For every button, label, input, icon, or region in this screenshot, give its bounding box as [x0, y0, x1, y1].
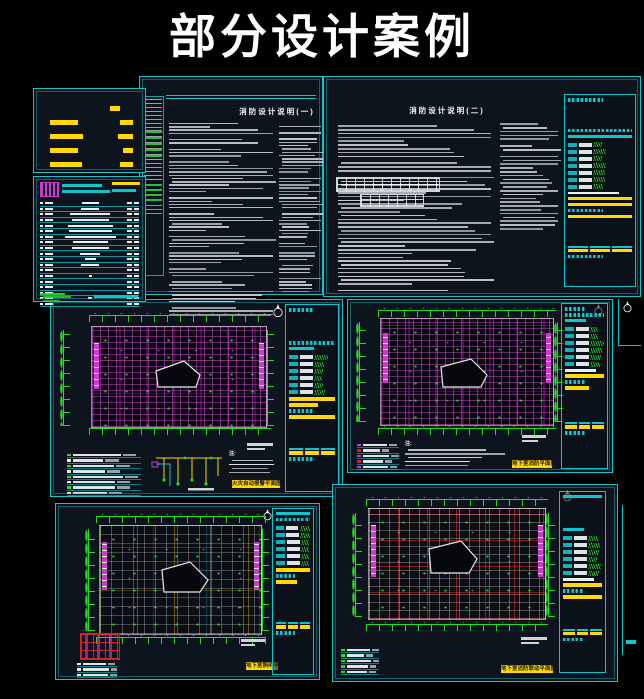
text-line-skeleton — [338, 144, 408, 146]
text-line-skeleton — [338, 290, 448, 292]
text-line-skeleton — [405, 465, 468, 466]
signature-row — [565, 355, 604, 360]
title-block — [559, 491, 606, 673]
signature-table — [568, 140, 632, 189]
signature-row — [565, 341, 604, 346]
partial-sheet-edge — [622, 505, 637, 655]
text-line-skeleton — [282, 233, 308, 234]
text-line-skeleton — [279, 142, 317, 143]
signature-table — [276, 524, 310, 566]
legend-dash-row — [50, 119, 133, 125]
sheet-plan-basement-lighting: 地下室照明平面图 — [55, 503, 320, 680]
axis-ticks-right — [548, 513, 555, 617]
text-line-skeleton — [500, 145, 532, 147]
text-line-skeleton — [279, 288, 312, 289]
date-bar — [276, 568, 310, 572]
project-yellow-bar — [568, 215, 632, 219]
signature-mark — [593, 149, 606, 154]
revision-bars — [521, 635, 547, 644]
legend-note-bar — [123, 454, 136, 456]
titleblock-footer-text — [276, 631, 295, 635]
cell — [45, 219, 53, 221]
field-value-box — [300, 369, 313, 374]
signature-row — [568, 149, 632, 154]
notes-block: 注: — [229, 452, 279, 473]
legend-symbol — [341, 649, 345, 651]
axis-ticks-left — [355, 513, 362, 617]
field-label-box — [568, 157, 577, 161]
legend-note-bar — [366, 654, 373, 656]
cell — [55, 230, 125, 232]
text-line-skeleton — [279, 230, 321, 231]
legend-symbol — [341, 654, 345, 656]
cell — [127, 241, 132, 243]
text-line-skeleton — [279, 281, 306, 282]
cell — [40, 258, 43, 260]
poster-canvas: 部分设计案例 消防设计说明(一) 消防设计说明(二) — [0, 0, 644, 699]
field-label-box — [565, 355, 574, 359]
legend-text-bar — [73, 481, 115, 483]
cell — [40, 275, 43, 277]
legend-text-bar — [363, 449, 380, 451]
cell — [127, 275, 132, 277]
text-line-skeleton — [279, 201, 320, 202]
titleblock-text — [568, 98, 603, 102]
legend-text-bar — [347, 649, 370, 651]
text-line-skeleton — [169, 142, 258, 143]
legend-dash — [50, 162, 82, 167]
cell — [40, 247, 43, 249]
legend-symbol — [67, 481, 71, 483]
text-line-skeleton — [43, 300, 60, 302]
legend-dashes — [50, 97, 133, 175]
legend-dash — [50, 148, 78, 153]
legend-symbol — [67, 459, 71, 461]
text-line-skeleton — [169, 168, 273, 169]
cell — [127, 230, 132, 232]
date-bar — [289, 397, 335, 401]
text-line-skeleton — [338, 137, 491, 139]
cell — [88, 297, 92, 299]
signature-mark — [301, 540, 309, 545]
text-line-skeleton — [341, 279, 494, 281]
text-line-skeleton — [503, 179, 549, 181]
cell — [45, 286, 53, 288]
text-line-skeleton — [232, 460, 273, 461]
signature-row — [568, 170, 632, 175]
signature-mark — [314, 362, 324, 367]
legend-dash-row — [50, 161, 133, 167]
field-value-box — [287, 554, 300, 559]
legend-text-bar — [363, 455, 389, 457]
atrium-void-outline — [427, 539, 479, 575]
text-line-skeleton — [500, 138, 549, 140]
legend-text-bar — [73, 492, 107, 494]
title-block — [564, 94, 636, 287]
rule-line — [166, 98, 316, 99]
legend-text-bar — [73, 454, 121, 456]
field-label-box — [568, 164, 577, 168]
cell — [127, 281, 132, 283]
cell — [127, 208, 132, 210]
signature-row — [563, 536, 602, 541]
text-line-skeleton — [500, 205, 558, 207]
cell — [134, 241, 139, 243]
legend-note-bar — [369, 671, 376, 673]
white-bar — [563, 578, 594, 581]
signature-row — [563, 550, 602, 555]
signature-row — [563, 543, 602, 548]
text-line-skeleton — [338, 170, 491, 172]
text-line-skeleton — [279, 132, 321, 133]
signature-mark — [300, 533, 310, 538]
cell — [55, 241, 125, 243]
cell — [127, 258, 132, 260]
field-value-box — [579, 150, 592, 155]
cell — [45, 275, 53, 277]
cell — [134, 258, 139, 260]
floor-plan-area — [368, 508, 546, 620]
cell — [55, 264, 125, 266]
axis-ticks-bottom — [89, 428, 271, 435]
cell — [134, 219, 139, 221]
text-line-skeleton — [279, 155, 315, 156]
legend-table — [77, 662, 117, 678]
white-bar — [565, 369, 596, 372]
text-line-skeleton — [279, 181, 311, 182]
white-bar — [568, 192, 619, 195]
cell — [40, 219, 43, 221]
legend-text-bar — [363, 466, 388, 468]
sheet-plan-basement-alarm: 注: 火灾自动报警平面图 — [50, 299, 343, 497]
text-line-skeleton — [169, 255, 273, 256]
text-line-skeleton — [169, 171, 267, 172]
field-label-box — [568, 150, 577, 154]
text-line-skeleton — [282, 204, 324, 205]
field-value-box — [300, 376, 313, 381]
floor-plan-area — [380, 318, 554, 426]
legend-row — [341, 670, 379, 675]
sheet-number-grid — [563, 629, 602, 636]
field-value-box — [287, 561, 300, 566]
text-line-skeleton — [169, 243, 244, 244]
text-line-skeleton — [172, 288, 232, 289]
text-line-skeleton — [169, 252, 239, 253]
cell — [81, 264, 99, 266]
project-label — [568, 209, 603, 213]
text-line-skeleton — [405, 453, 505, 454]
cell — [134, 303, 139, 305]
divider-bar — [563, 528, 584, 531]
load-schedule-red-table — [80, 633, 120, 660]
date-bar — [568, 197, 632, 201]
sheet-title: 消防设计说明(二) — [387, 105, 507, 116]
legend-symbol — [77, 674, 81, 676]
signature-mark — [590, 341, 604, 346]
cell — [134, 253, 139, 255]
signature-row — [276, 547, 310, 552]
header-yellow-bar — [112, 182, 140, 185]
field-value-box — [574, 543, 587, 548]
cell — [82, 202, 99, 204]
legend-note-bar — [382, 449, 390, 451]
legend-note-bar — [370, 665, 377, 667]
cell — [40, 208, 43, 210]
spec-text-column — [169, 121, 273, 315]
divider-bar — [565, 319, 586, 322]
cell — [134, 269, 139, 271]
signature-mark — [593, 177, 605, 182]
text-line-skeleton — [500, 123, 538, 125]
text-line-skeleton — [169, 149, 221, 150]
signature-mark — [300, 526, 310, 531]
project-yellow-bar — [565, 386, 589, 390]
legend-symbol — [357, 444, 361, 446]
legend-text-bar — [83, 663, 106, 665]
text-line-skeleton — [169, 236, 245, 237]
cell — [127, 247, 132, 249]
field-value-box — [579, 157, 592, 162]
field-label-box — [563, 557, 572, 561]
cell — [134, 292, 139, 294]
text-line-skeleton — [338, 219, 437, 221]
sheet-plan-basement-fire: 注: 地下室消防平面图 — [347, 299, 613, 473]
company-name-text — [568, 129, 632, 133]
sheet-number-grid — [565, 422, 604, 429]
field-value-box — [300, 355, 313, 360]
signature-row — [289, 376, 335, 381]
text-line-skeleton — [500, 135, 558, 137]
rule-line — [166, 95, 316, 96]
text-line-skeleton — [503, 194, 543, 196]
shaft-bar — [102, 542, 107, 590]
text-line-skeleton — [169, 284, 245, 285]
text-line-skeleton — [279, 184, 320, 185]
cell — [65, 236, 116, 238]
shaft-bar — [383, 333, 388, 383]
cell — [68, 225, 113, 227]
signature-row — [568, 163, 632, 168]
text-line-skeleton — [338, 129, 474, 131]
cell — [55, 208, 125, 210]
cell — [45, 208, 53, 210]
project-yellow-bar — [276, 580, 297, 584]
signature-mark — [590, 362, 600, 367]
cell — [45, 269, 53, 271]
legend-symbol — [341, 660, 345, 662]
legend-symbol — [67, 486, 71, 488]
legend-symbol — [341, 671, 345, 673]
cell — [134, 208, 139, 210]
legend-dash — [118, 134, 133, 139]
divider-bar — [568, 135, 632, 138]
drawing-caption: 地下室消防平面图 — [512, 460, 552, 468]
legend-text-bar — [347, 665, 368, 667]
cell — [85, 258, 96, 260]
legend-text-bar — [347, 660, 371, 662]
text-line-skeleton — [169, 262, 221, 263]
notes-lines — [229, 460, 279, 473]
text-line-skeleton — [338, 257, 403, 259]
text-line-skeleton — [172, 223, 222, 224]
legend-table — [341, 648, 379, 675]
text-line-skeleton — [500, 190, 558, 192]
cell — [40, 225, 43, 227]
legend-dash-row — [50, 105, 133, 111]
legend-note-bar — [109, 492, 122, 494]
field-label-box — [289, 376, 298, 380]
cell — [40, 202, 43, 204]
field-value-box — [576, 355, 589, 360]
text-line-skeleton — [279, 278, 321, 279]
text-line-skeleton — [341, 215, 425, 217]
text-line-skeleton — [341, 207, 452, 209]
legend-dash — [120, 120, 133, 125]
signature-row — [289, 362, 335, 367]
field-value-box — [574, 557, 587, 562]
text-line-skeleton — [500, 156, 558, 158]
cell — [45, 247, 53, 249]
text-line-skeleton — [279, 168, 311, 169]
text-line-skeleton — [172, 239, 276, 240]
text-line-skeleton — [279, 171, 308, 172]
legend-symbol — [67, 492, 71, 494]
legend-symbol — [77, 663, 81, 665]
legend-text-bar — [83, 674, 108, 676]
field-label-box — [563, 536, 572, 540]
text-line-skeleton — [338, 211, 400, 213]
text-line-skeleton — [341, 230, 475, 232]
signature-row — [568, 177, 632, 182]
signature-mark — [314, 390, 325, 395]
project-label — [563, 589, 584, 593]
text-line-skeleton — [169, 201, 212, 202]
text-line-skeleton — [279, 197, 317, 198]
signature-row — [276, 533, 310, 538]
legend-note-bar — [110, 674, 117, 676]
spec-text-column — [500, 121, 558, 230]
shaft-bar — [371, 525, 376, 577]
field-label-box — [568, 143, 577, 147]
axis-ticks-right — [267, 330, 274, 426]
signature-row — [565, 327, 604, 332]
text-line-skeleton — [338, 156, 464, 158]
atrium-void-outline — [154, 359, 202, 389]
cell — [45, 202, 53, 204]
signature-row — [289, 369, 335, 374]
cell — [134, 230, 139, 232]
signature-mark — [314, 369, 323, 374]
atrium-void-outline — [439, 357, 489, 389]
titleblock-text — [289, 308, 314, 312]
text-line-skeleton — [500, 167, 533, 169]
field-value-box — [576, 362, 589, 367]
field-value-box — [579, 185, 592, 190]
cell — [45, 230, 53, 232]
field-value-box — [576, 348, 589, 353]
legend-note-bar — [390, 466, 398, 468]
field-label-box — [289, 362, 298, 366]
text-line-skeleton — [338, 276, 464, 278]
text-line-skeleton — [500, 213, 558, 215]
signature-mark — [588, 536, 598, 541]
company-name-text — [289, 341, 335, 345]
cell — [127, 303, 132, 305]
notes-header: 注: — [405, 442, 507, 447]
signature-row — [276, 540, 310, 545]
text-line-skeleton — [338, 133, 491, 135]
signature-row — [276, 526, 310, 531]
cell — [134, 247, 139, 249]
text-line-skeleton — [169, 220, 273, 221]
field-label-box — [568, 171, 577, 175]
signature-mark — [314, 376, 322, 381]
legend-text-bar — [83, 668, 109, 670]
field-value-box — [300, 362, 313, 367]
text-line-skeleton — [172, 275, 254, 276]
legend-row — [67, 491, 141, 496]
text-line-skeleton — [282, 148, 311, 149]
cell — [127, 253, 132, 255]
signature-row — [568, 156, 632, 161]
text-line-skeleton — [282, 291, 309, 292]
text-line-skeleton — [279, 284, 312, 285]
cell — [55, 247, 125, 249]
date-bar — [565, 374, 604, 378]
text-line-skeleton — [169, 268, 206, 269]
legend-text-bar — [363, 460, 383, 462]
date-bar — [568, 203, 632, 207]
revision-bars — [522, 433, 546, 442]
text-line-skeleton — [341, 264, 448, 266]
legend-note-bar — [125, 476, 138, 478]
cell — [80, 253, 100, 255]
text-line-skeleton — [338, 166, 491, 168]
floor-plan-area — [91, 326, 267, 428]
field-label-box — [289, 355, 298, 359]
text-line-skeleton — [338, 125, 437, 127]
field-value-box — [576, 327, 589, 332]
signature-mark — [590, 334, 598, 339]
text-line-skeleton — [169, 291, 273, 292]
field-label-box — [276, 547, 285, 551]
field-label-box — [565, 348, 574, 352]
text-line-skeleton — [503, 160, 561, 162]
text-line-skeleton — [172, 281, 222, 282]
cell — [45, 264, 53, 266]
legend-symbol — [357, 466, 361, 468]
legend-note-bar — [391, 455, 399, 457]
text-line-skeleton — [282, 207, 317, 208]
notes-block: 注: — [405, 442, 507, 466]
text-line-skeleton — [279, 191, 321, 192]
text-line-skeleton — [341, 241, 494, 243]
cell — [55, 303, 125, 305]
text-line-skeleton — [279, 268, 310, 269]
text-line-skeleton — [408, 457, 482, 458]
sheet-drawing-list — [33, 176, 146, 302]
text-line-skeleton — [500, 209, 541, 211]
legend-text-bar — [73, 465, 114, 467]
title-block — [272, 508, 314, 675]
legend-row — [77, 673, 117, 678]
field-value-box — [576, 334, 589, 339]
text-line-skeleton — [279, 194, 308, 195]
text-line-skeleton — [279, 187, 309, 188]
field-value-box — [300, 383, 313, 388]
text-line-skeleton — [282, 158, 324, 159]
revision-bars — [247, 441, 273, 450]
